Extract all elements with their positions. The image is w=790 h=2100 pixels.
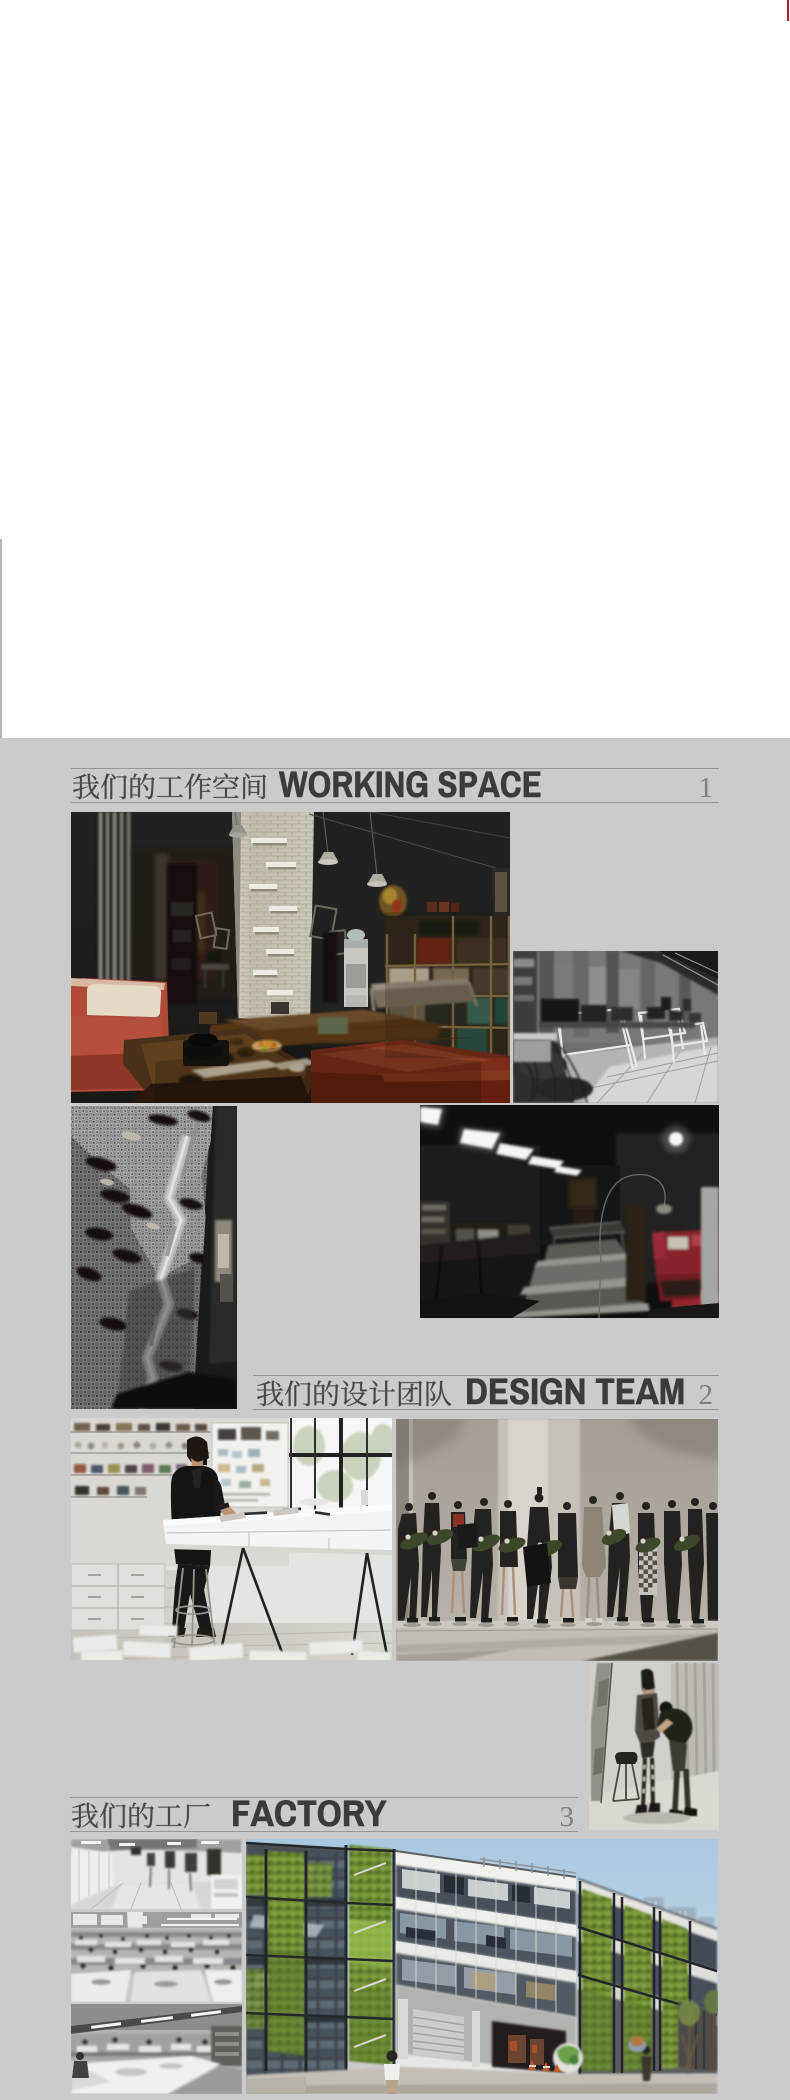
svg-text:1: 1: [699, 772, 714, 804]
svg-text:2: 2: [699, 1379, 714, 1411]
svg-text:3: 3: [560, 1801, 575, 1833]
